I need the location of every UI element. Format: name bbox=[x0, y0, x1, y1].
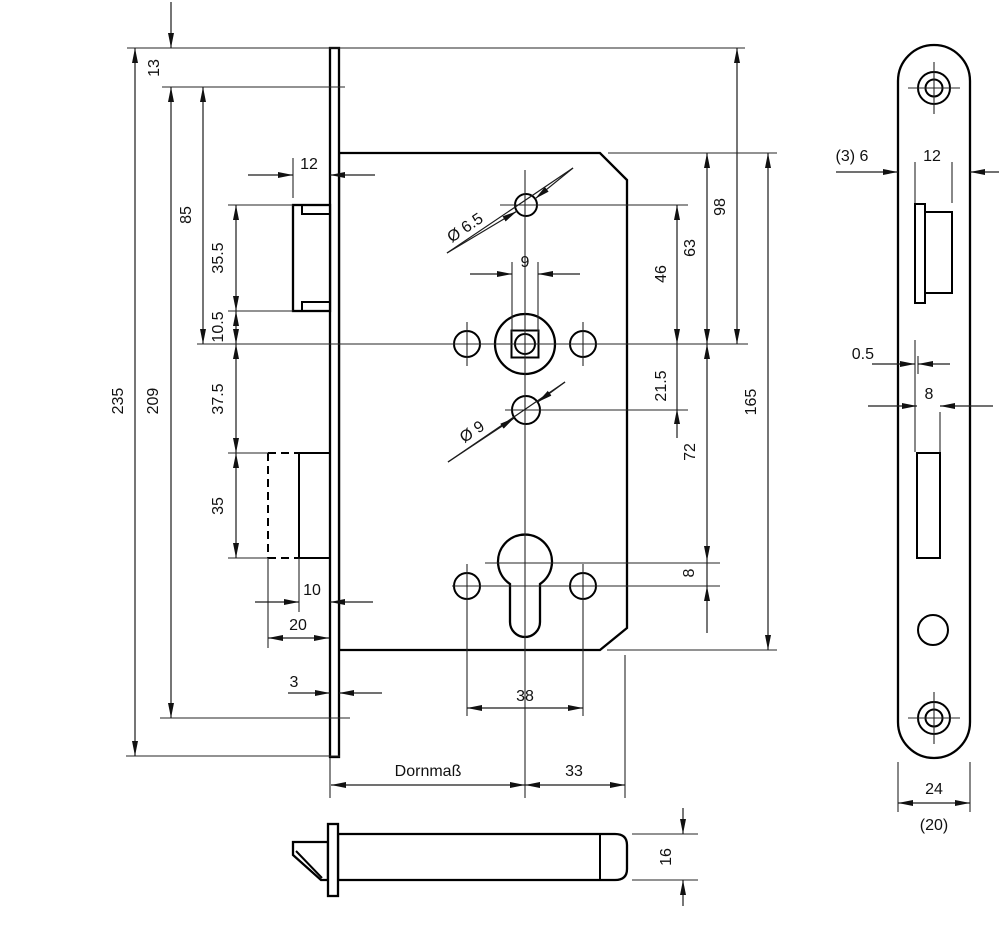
dim-label-8: 8 bbox=[681, 568, 698, 577]
dim-label-10: 10 bbox=[303, 582, 321, 599]
dim-label-35-5: 35.5 bbox=[210, 242, 227, 273]
dim-label-dornmass: Dornmaß bbox=[395, 763, 462, 780]
dim-label-33: 33 bbox=[565, 763, 583, 780]
faceplate-bottom bbox=[328, 824, 338, 896]
dim-label-72: 72 bbox=[682, 443, 699, 461]
dim-label-9: 9 bbox=[521, 254, 530, 271]
dim-label-85: 85 bbox=[178, 206, 195, 224]
dim-label-37-5: 37.5 bbox=[210, 383, 227, 414]
faceplate-front-view: (3) 6 12 0.5 8 24 (20) bbox=[836, 45, 999, 834]
latch-bolt bbox=[293, 205, 330, 311]
dim-label-21-5: 21.5 bbox=[653, 370, 670, 401]
lock-drawing-svg: 13 235 209 85 35.5 10.5 37.5 35 46 63 98… bbox=[0, 0, 1000, 927]
dim-label-165: 165 bbox=[743, 389, 760, 416]
bottom-view: 16 bbox=[293, 808, 698, 906]
case-bottom-outline bbox=[338, 834, 627, 880]
main-view: 13 235 209 85 35.5 10.5 37.5 35 46 63 98… bbox=[110, 2, 777, 798]
dim-label-24: 24 bbox=[925, 781, 943, 798]
dim-label-16: 16 bbox=[658, 848, 675, 866]
dim-label-12-front: 12 bbox=[923, 148, 941, 165]
dim-label-46: 46 bbox=[653, 265, 670, 283]
dim-label-35: 35 bbox=[210, 497, 227, 515]
dim-label-13: 13 bbox=[146, 59, 163, 77]
dim-label-235: 235 bbox=[110, 388, 127, 415]
dim-label-63: 63 bbox=[682, 239, 699, 257]
dim-label-3-6: (3) 6 bbox=[836, 148, 869, 165]
dim-label-209: 209 bbox=[145, 388, 162, 415]
dim-label-12: 12 bbox=[300, 156, 318, 173]
dim-label-3: 3 bbox=[290, 674, 299, 691]
dim-label-8-front: 8 bbox=[925, 386, 934, 403]
dim-label-0-5: 0.5 bbox=[852, 346, 874, 363]
dim-label-20: 20 bbox=[289, 617, 307, 634]
dead-bolt-dashed bbox=[268, 453, 330, 558]
lock-case-outline bbox=[339, 153, 627, 650]
dim-label-98: 98 bbox=[712, 198, 729, 216]
dim-label-20-alt: (20) bbox=[920, 817, 948, 834]
dim-label-38: 38 bbox=[516, 688, 534, 705]
latch-bottom bbox=[293, 842, 328, 880]
technical-drawing-page: 13 235 209 85 35.5 10.5 37.5 35 46 63 98… bbox=[0, 0, 1000, 927]
dim-label-10-5: 10.5 bbox=[210, 311, 227, 342]
faceplate-side bbox=[330, 48, 339, 757]
